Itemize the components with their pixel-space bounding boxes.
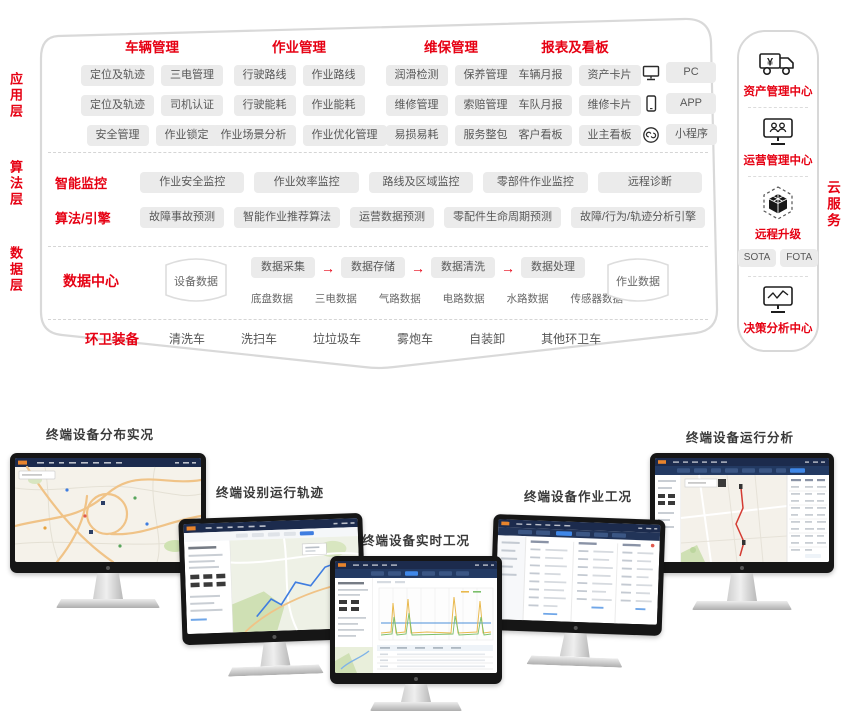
divider (48, 152, 708, 153)
flow-arrow: → (501, 261, 515, 275)
equipment-item: 垃垃圾车 (313, 330, 361, 347)
fota-badge: FOTA (780, 249, 818, 267)
algo-pill: 故障事故预测 (140, 207, 224, 228)
asset-center: ¥ 资产管理中心 (744, 48, 813, 99)
camera-dot-icon (106, 566, 110, 570)
feature-pill: 车辆月报 (510, 65, 572, 86)
feature-pill: 车队月报 (510, 95, 572, 116)
algo-pill: 作业效率监控 (254, 172, 358, 193)
device-pc: PC (642, 62, 728, 83)
monitor-frame (330, 556, 502, 684)
monitor-stand (93, 573, 123, 599)
divider (48, 246, 708, 247)
device-data-store: 设备数据 (161, 251, 231, 309)
feature-pill: 安全管理 (87, 125, 149, 146)
cloud-item-label: 远程升级 (755, 226, 801, 242)
monitor-stand (401, 684, 431, 702)
monitor-caption: 终端设备作业工况 (524, 486, 632, 505)
monitor-base (370, 702, 462, 711)
source-label: 底盘数据 (251, 291, 293, 306)
feature-pill: 润滑检测 (386, 65, 448, 86)
divider (748, 107, 808, 108)
equipment-item: 自装卸 (469, 330, 505, 347)
algo-row-monitoring: 智能监控 作业安全监控 作业效率监控 路线及区域监控 零部件作业监控 远程诊断 (55, 172, 707, 193)
monitor-chin (655, 562, 829, 573)
monitor-stand (260, 641, 291, 666)
equipment-items: 清洗车 洗扫车 垃垃圾车 雾炮车 自装卸 其他环卫车 (169, 330, 601, 347)
camera-dot-icon (414, 677, 418, 681)
algo-row-title: 智能监控 (55, 173, 135, 192)
cloud-item-label: 资产管理中心 (744, 83, 813, 99)
feature-pill: 行驶路线 (234, 65, 296, 86)
flow-step: 数据存储 (341, 257, 405, 278)
group-reports-boards: 报表及看板 车辆月报资产卡片 车队月报维修卡片 客户看板业主看板 (482, 36, 668, 155)
monitor-caption: 终端设备实时工况 (362, 530, 470, 549)
equipment-item: 雾炮车 (397, 330, 433, 347)
flow-arrow: → (321, 261, 335, 275)
camera-dot-icon (740, 566, 744, 570)
monitor-caption: 终端设备运行分析 (686, 427, 794, 446)
decision-center: 决策分析中心 (744, 285, 813, 336)
source-label: 电路数据 (443, 291, 485, 306)
source-label: 气路数据 (379, 291, 421, 306)
monitor-frame (650, 453, 834, 573)
monitor-base (56, 599, 160, 608)
feature-pill: 业主看板 (579, 125, 641, 146)
monitor-frame (490, 514, 666, 636)
monitor-stand (560, 632, 591, 657)
algo-pill: 故障/行为/轨迹分析引擎 (571, 207, 705, 228)
data-center-title: 数据中心 (63, 271, 119, 291)
page: 应用层 算法层 数据层 车辆管理 定位及轨迹三电管理 定位及轨迹司机认证 安全管… (0, 0, 851, 715)
monitor-operation (488, 514, 665, 669)
monitor-base (526, 655, 622, 667)
monitor-base (227, 664, 323, 676)
monitor-screen-realtime (335, 561, 497, 673)
device-app: APP (642, 93, 728, 114)
feature-pill: 作业场景分析 (212, 125, 296, 146)
feature-pill: 资产卡片 (579, 65, 641, 86)
data-layer-label: 数据层 (6, 246, 25, 294)
upgrade-badges: SOTA FOTA (738, 249, 818, 267)
camera-dot-icon (272, 634, 276, 638)
flow-arrow: → (411, 261, 425, 275)
algo-pill: 智能作业推荐算法 (234, 207, 340, 228)
monitor-distribution (10, 453, 206, 608)
feature-pill: 作业能耗 (303, 95, 365, 116)
algo-pill: 远程诊断 (598, 172, 702, 193)
app-layer-label: 应用层 (6, 72, 25, 120)
device-label: 小程序 (666, 124, 717, 145)
feature-pill: 作业路线 (303, 65, 365, 86)
algo-pill: 作业安全监控 (140, 172, 244, 193)
equipment-item: 清洗车 (169, 330, 205, 347)
device-miniprogram: 小程序 (642, 124, 728, 145)
feature-pill: 客户看板 (510, 125, 572, 146)
flow-step: 数据清洗 (431, 257, 495, 278)
monitor-screen-analysis (655, 458, 829, 562)
data-sources: 底盘数据 三电数据 气路数据 电路数据 水路数据 传感器数据 (251, 291, 623, 306)
feature-pill: 定位及轨迹 (81, 65, 154, 86)
equipment-item: 洗扫车 (241, 330, 277, 347)
equipment-item: 其他环卫车 (541, 330, 601, 347)
phone-icon (642, 95, 660, 112)
algo-pill: 运营数据预测 (350, 207, 434, 228)
feature-pill: 维修管理 (386, 95, 448, 116)
cloud-item-label: 运营管理中心 (744, 152, 813, 168)
monitor-stand (727, 573, 757, 601)
data-center-section: 数据中心 设备数据 数据采集 → 数据存储 → 数据清洗 → 数据处理 底盘数据… (55, 249, 723, 313)
svg-text:¥: ¥ (767, 57, 774, 69)
monitor-chart-icon (759, 285, 797, 315)
cloud-side-label: 云服务 (822, 180, 842, 230)
monitor-caption: 终端设别运行轨迹 (216, 482, 324, 501)
remote-upgrade: 远程升级 SOTA FOTA (738, 185, 818, 267)
monitor-chin (335, 673, 497, 684)
equipment-title: 环卫装备 (85, 328, 139, 348)
source-label: 三电数据 (315, 291, 357, 306)
divider (48, 319, 708, 320)
feature-pill: 易损易耗 (386, 125, 448, 146)
algo-row-engines: 算法/引擎 故障事故预测 智能作业推荐算法 运营数据预测 零配件生命周期预测 故… (55, 207, 707, 228)
cloud-services-panel: ¥ 资产管理中心 运营管理中心 (737, 30, 819, 352)
source-label: 水路数据 (507, 291, 549, 306)
monitor-analysis (650, 453, 834, 610)
monitor-frame (10, 453, 206, 573)
algo-pill: 零部件作业监控 (483, 172, 587, 193)
camera-dot-icon (574, 625, 578, 629)
device-column: PC APP 小程序 (642, 62, 728, 145)
data-flow: 数据采集 → 数据存储 → 数据清洗 → 数据处理 (251, 257, 585, 278)
device-label: PC (666, 62, 716, 83)
monitor-chin (15, 562, 201, 573)
monitor-users-icon (759, 117, 797, 147)
sota-badge: SOTA (738, 249, 776, 267)
feature-pill: 定位及轨迹 (81, 95, 154, 116)
monitor-screen-operation (495, 519, 660, 625)
divider (748, 276, 808, 277)
monitor-realtime (330, 556, 502, 711)
divider (748, 176, 808, 177)
monitor-base (692, 601, 792, 610)
cube-icon (759, 185, 797, 221)
store-label: 设备数据 (161, 273, 231, 289)
cloud-item-label: 决策分析中心 (744, 320, 813, 336)
flow-step: 数据采集 (251, 257, 315, 278)
algo-row-title: 算法/引擎 (55, 208, 135, 227)
feature-pill: 行驶能耗 (234, 95, 296, 116)
algo-pill: 路线及区域监控 (369, 172, 473, 193)
group-title: 报表及看板 (482, 36, 668, 56)
algo-pill: 零配件生命周期预测 (444, 207, 561, 228)
algo-layer-label: 算法层 (6, 160, 25, 208)
flow-step: 数据处理 (521, 257, 585, 278)
operations-center: 运营管理中心 (744, 117, 813, 168)
monitor-screen-map (15, 458, 201, 562)
monitor-caption: 终端设备分布实况 (46, 424, 154, 443)
pc-icon (642, 65, 660, 81)
device-label: APP (666, 93, 716, 114)
truck-yuan-icon: ¥ (758, 48, 798, 78)
feature-pill: 维修卡片 (579, 95, 641, 116)
operation-data-store: 作业数据 (603, 251, 673, 309)
link-icon (642, 126, 660, 144)
store-label: 作业数据 (603, 273, 673, 289)
equipment-row: 环卫装备 清洗车 洗扫车 垃垃圾车 雾炮车 自装卸 其他环卫车 (55, 328, 601, 348)
